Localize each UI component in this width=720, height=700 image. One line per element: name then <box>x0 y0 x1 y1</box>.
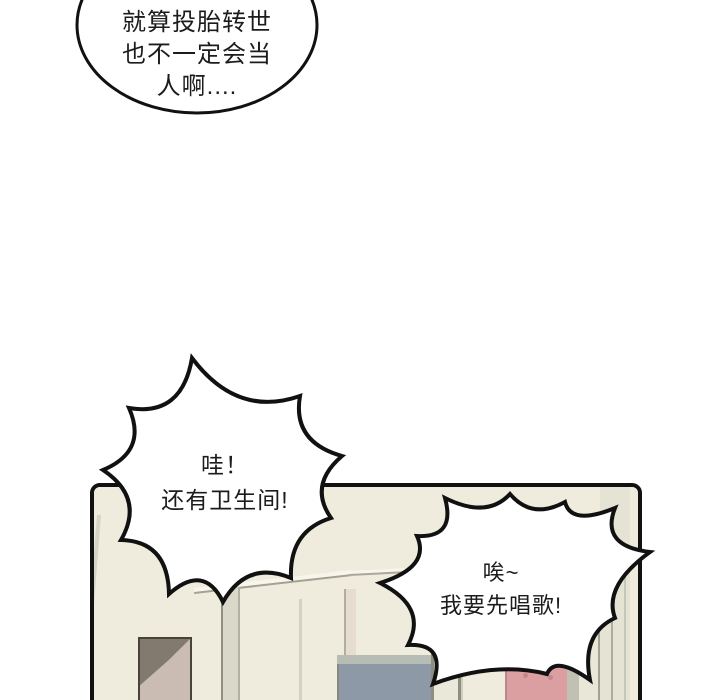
thought-line-1: 就算投胎转世 <box>92 7 302 39</box>
burst-sing-line-2: 我要先唱歌! <box>406 589 596 622</box>
burst-bathroom-line-2: 还有卫生间! <box>130 483 320 518</box>
thought-line-3: 人啊.... <box>92 71 302 103</box>
burst-sing-line-1: 唉~ <box>406 556 596 589</box>
comic-page: 就算投胎转世 也不一定会当 人啊.... 哇！ 还有卫生间! <box>0 0 720 700</box>
burst-bathroom-text: 哇！ 还有卫生间! <box>130 448 320 518</box>
burst-bathroom-line-1: 哇！ <box>130 448 320 483</box>
thought-line-2: 也不一定会当 <box>92 39 302 71</box>
left-doorway <box>138 637 192 700</box>
burst-sing-text: 唉~ 我要先唱歌! <box>406 556 596 622</box>
doorway-shadow <box>140 639 190 700</box>
thought-bubble-text: 就算投胎转世 也不一定会当 人啊.... <box>92 7 302 103</box>
